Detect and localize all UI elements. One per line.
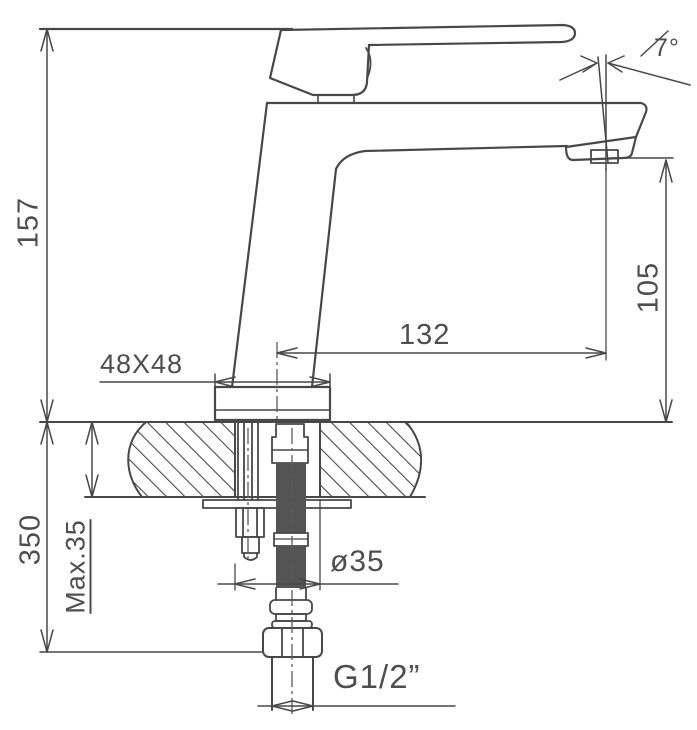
braided-hose-upper bbox=[276, 463, 306, 533]
angle-leader-left bbox=[560, 63, 597, 80]
dim-hose-length-label: 350 bbox=[17, 485, 46, 595]
spout-end bbox=[636, 103, 646, 137]
handle-knob bbox=[270, 30, 369, 95]
hose-top-fitting bbox=[272, 424, 308, 463]
ferrule-bulge bbox=[270, 600, 312, 614]
dim-inlet-thread-label: G1/2” bbox=[333, 660, 421, 693]
dim-base-footprint-label: 48X48 bbox=[100, 351, 183, 378]
handle-lever bbox=[281, 25, 575, 45]
dim-spout-height-label: 105 bbox=[635, 233, 664, 343]
body-left-edge bbox=[232, 103, 267, 387]
dim-spout-reach-label: 132 bbox=[399, 321, 450, 350]
stud-end bbox=[242, 537, 259, 553]
stud-tip bbox=[244, 553, 257, 560]
dim-spout-angle-label: 7° bbox=[654, 36, 680, 61]
dim-max-thickness-label: Max.35 bbox=[63, 512, 90, 622]
faucet-technical-drawing: 157 350 Max.35 48X48 132 105 7° ø35 G1/2… bbox=[0, 0, 697, 730]
dim-total-height-label: 157 bbox=[15, 168, 44, 278]
aerator-outlet bbox=[591, 150, 618, 163]
cartridge-ring bbox=[318, 95, 354, 103]
ferrule-neck bbox=[276, 588, 306, 600]
mounting-hardware bbox=[236, 420, 264, 560]
mounting-nut bbox=[236, 508, 264, 537]
countertop-section bbox=[40, 422, 672, 508]
ferrule-neck-2 bbox=[276, 614, 306, 621]
aerator-housing bbox=[566, 137, 636, 160]
counter-right-block bbox=[320, 422, 421, 497]
braided-hose-lower bbox=[276, 546, 306, 588]
dim-hole-diameter-label: ø35 bbox=[330, 547, 385, 577]
base-plate bbox=[215, 387, 330, 420]
angle-arrow-right bbox=[608, 56, 624, 72]
counter-left-block bbox=[128, 422, 235, 497]
mounting-nut-facets bbox=[243, 508, 257, 537]
angle-leader-right bbox=[608, 63, 690, 85]
